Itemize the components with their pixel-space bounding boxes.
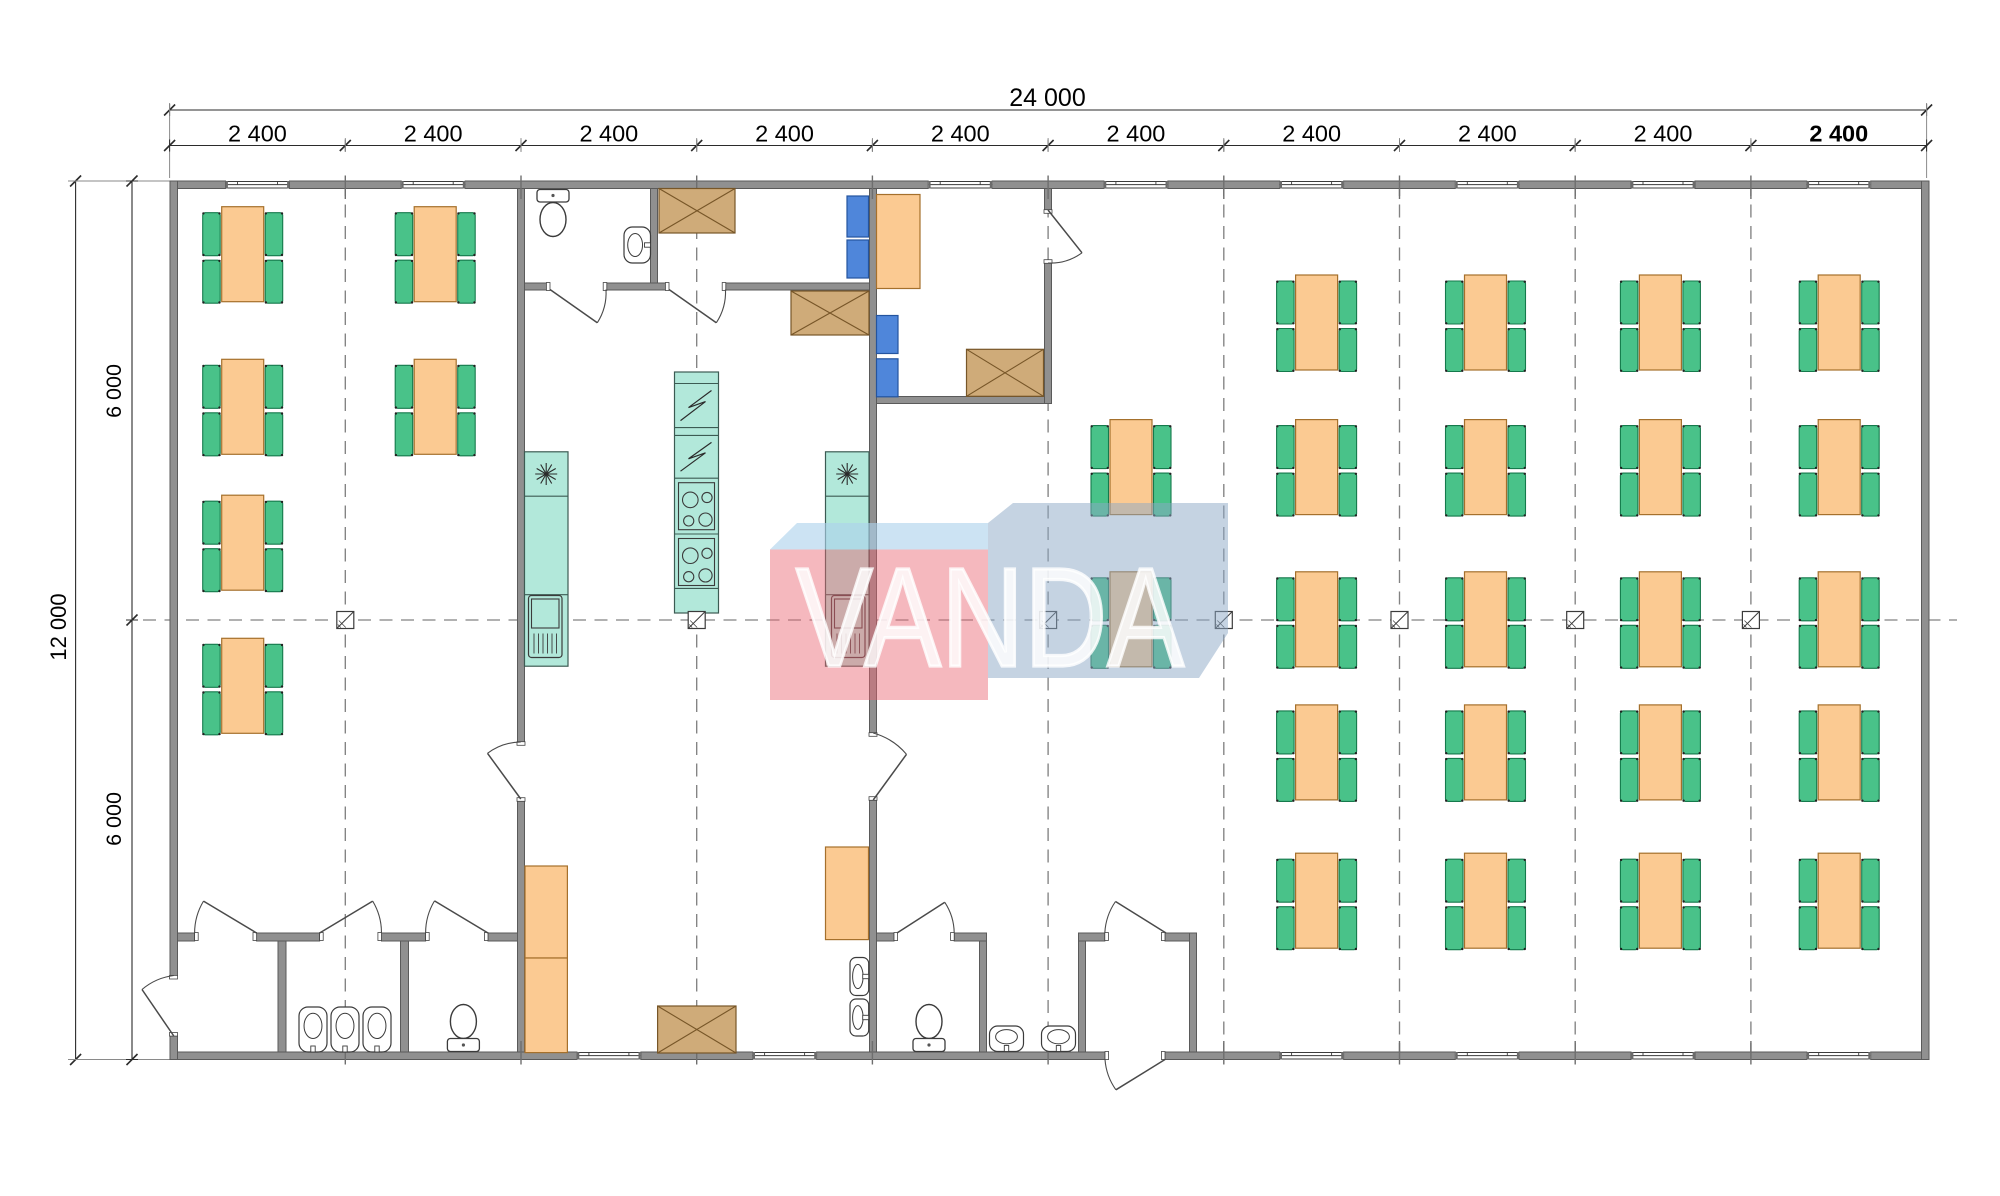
svg-text:2 400: 2 400 [1107, 121, 1166, 147]
svg-text:2 400: 2 400 [755, 121, 814, 147]
svg-text:2 400: 2 400 [1634, 121, 1693, 147]
svg-text:6 000: 6 000 [102, 364, 126, 418]
svg-text:2 400: 2 400 [404, 121, 463, 147]
svg-text:24 000: 24 000 [1009, 84, 1085, 112]
svg-text:6 000: 6 000 [102, 792, 126, 846]
svg-text:2 400: 2 400 [1458, 121, 1517, 147]
svg-text:2 400: 2 400 [579, 121, 638, 147]
svg-text:2 400: 2 400 [1809, 121, 1868, 147]
svg-text:12 000: 12 000 [46, 593, 71, 660]
svg-text:VANDA: VANDA [796, 538, 1184, 696]
svg-text:2 400: 2 400 [1282, 121, 1341, 147]
svg-text:2 400: 2 400 [228, 121, 287, 147]
svg-text:2 400: 2 400 [931, 121, 990, 147]
